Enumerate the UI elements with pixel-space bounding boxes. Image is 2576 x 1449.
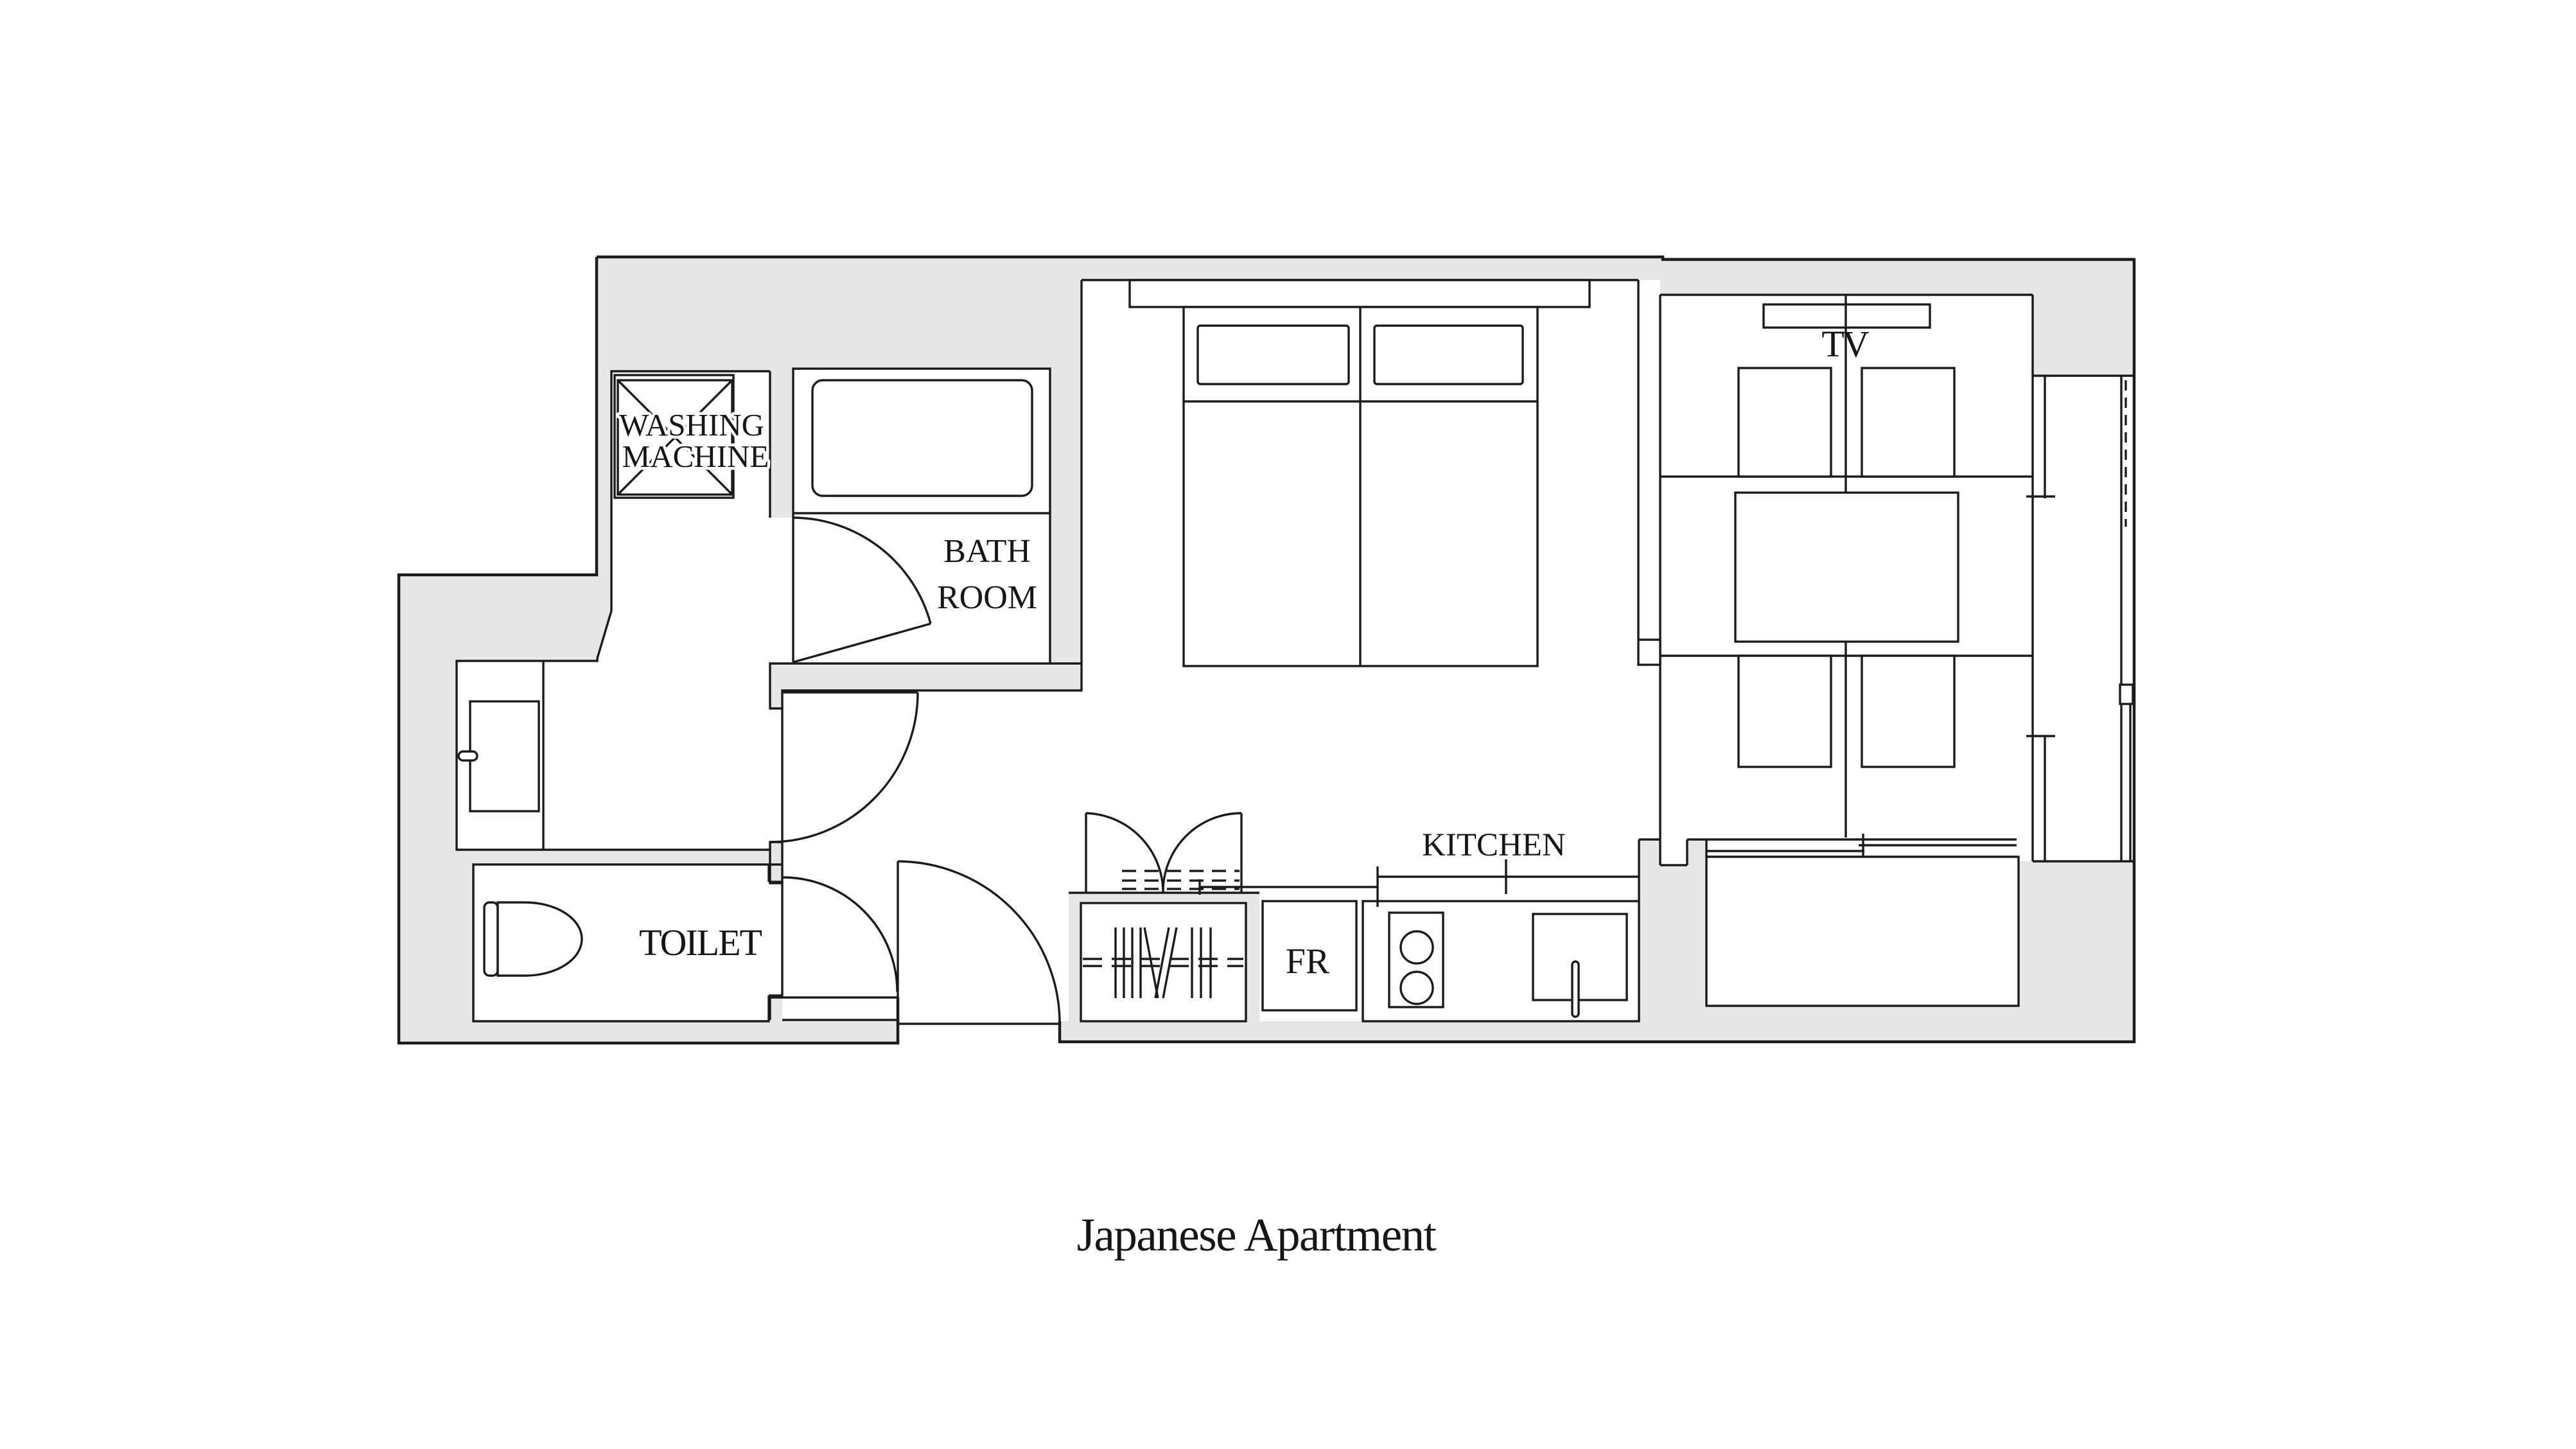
svg-text:Japanese Apartment: Japanese Apartment [1077, 1209, 1437, 1261]
svg-text:WASHING: WASHING [619, 407, 764, 443]
svg-text:KITCHEN: KITCHEN [1422, 827, 1566, 863]
svg-text:FR: FR [1286, 942, 1330, 981]
svg-text:BATH: BATH [943, 533, 1031, 570]
svg-text:TOILET: TOILET [639, 922, 762, 963]
svg-text:ROOM: ROOM [937, 579, 1037, 616]
svg-text:TV: TV [1821, 323, 1869, 365]
svg-text:MACHINE: MACHINE [622, 439, 769, 474]
